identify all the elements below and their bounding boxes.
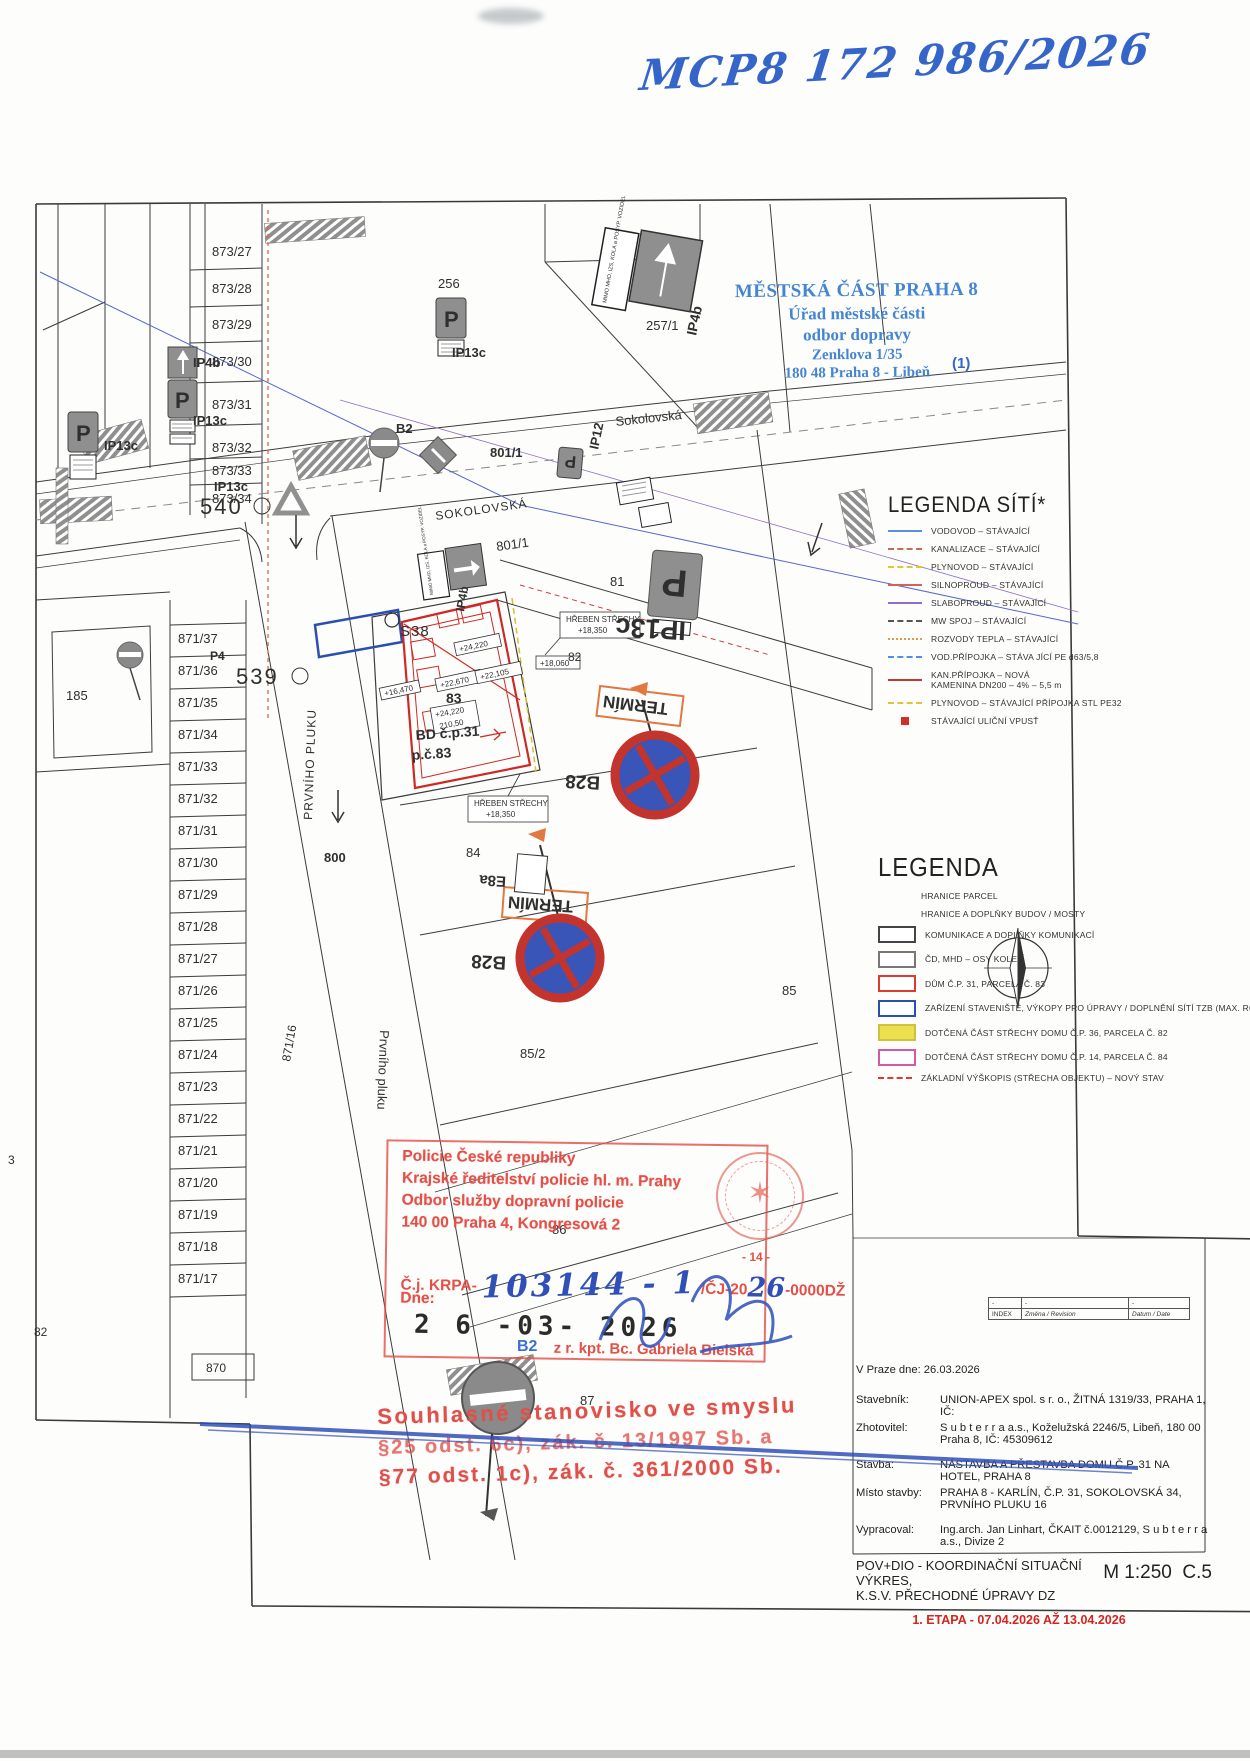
svg-text:BD č.p.31: BD č.p.31 <box>415 723 480 743</box>
stage-line: 1. ETAPA - 07.04.2026 AŽ 13.04.2026 <box>856 1613 1212 1627</box>
b2-annotation: B2 <box>517 1338 537 1356</box>
svg-text:871/18: 871/18 <box>178 1239 218 1254</box>
svg-text:E8a: E8a <box>478 871 506 889</box>
svg-text:HŘEBEN STŘECHY: HŘEBEN STŘECHY <box>474 799 548 808</box>
svg-text:IP13c: IP13c <box>452 345 486 360</box>
svg-text:IP13c: IP13c <box>193 413 227 428</box>
svg-text:871/33: 871/33 <box>178 759 218 774</box>
authority-stamp-line2: Úřad městské části <box>718 303 996 325</box>
scanned-plan-page: MIMO MHD, IZS, KOLA a POSYP. VOZIDEL MIM… <box>0 0 1250 1761</box>
svg-text:PRVNÍHO PLUKU: PRVNÍHO PLUKU <box>300 709 319 820</box>
svg-text:871/22: 871/22 <box>178 1111 218 1126</box>
svg-text:256: 256 <box>438 276 460 291</box>
revision-index-table: - - - INDEX Změna / Revision Datum / Dat… <box>988 1297 1190 1320</box>
svg-text:801/1: 801/1 <box>495 535 529 554</box>
legend-networks-title: LEGENDA SÍTÍ* <box>888 492 1081 518</box>
svg-text:871/21: 871/21 <box>178 1143 218 1158</box>
legend-main: LEGENDA HRANICE PARCEL HRANICE A DOPLŇKY… <box>878 852 1178 1091</box>
svg-text:Sokolovská: Sokolovská <box>615 407 683 429</box>
svg-text:871/19: 871/19 <box>178 1207 218 1222</box>
svg-text:P4: P4 <box>210 649 225 663</box>
svg-text:82: 82 <box>34 1325 48 1339</box>
svg-text:871/26: 871/26 <box>178 983 218 998</box>
yield-sign <box>276 486 306 513</box>
svg-text:IP4b: IP4b <box>453 585 471 612</box>
svg-text:873/27: 873/27 <box>212 244 252 259</box>
svg-text:IP13c: IP13c <box>214 479 248 494</box>
svg-text:TERMÍN: TERMÍN <box>602 692 669 719</box>
svg-text:+18,060: +18,060 <box>540 659 570 668</box>
svg-text:+18,350: +18,350 <box>578 626 608 635</box>
svg-text:P: P <box>76 421 91 446</box>
svg-text:P: P <box>660 560 689 604</box>
svg-text:540: 540 <box>200 494 243 519</box>
drawing-title: POV+DIO - KOORDINAČNÍ SITUAČNÍ VÝKRES, K… <box>856 1558 1212 1603</box>
scale-and-sheet: M 1:250 C.5 <box>1103 1562 1212 1584</box>
page-mark: - 14 - <box>742 1250 770 1264</box>
police-emblem: ✶ <box>716 1152 804 1240</box>
handwritten-case-number: 103144 - 1 <box>481 1265 697 1306</box>
svg-text:871/16: 871/16 <box>279 1024 299 1063</box>
legend-networks: LEGENDA SÍTÍ* VODOVOD – STÁVAJÍCÍ KANALI… <box>888 492 1098 734</box>
svg-text:871/25: 871/25 <box>178 1015 218 1030</box>
svg-text:85: 85 <box>782 983 796 998</box>
svg-text:257/1: 257/1 <box>646 318 679 333</box>
svg-text:P: P <box>564 452 577 472</box>
svg-text:IP12: IP12 <box>586 421 606 450</box>
svg-text:S38: S38 <box>400 623 430 640</box>
svg-text:871/17: 871/17 <box>178 1271 218 1286</box>
svg-text:P: P <box>175 388 190 413</box>
svg-text:P: P <box>444 307 459 332</box>
svg-text:185: 185 <box>66 688 88 703</box>
svg-text:871/34: 871/34 <box>178 727 218 742</box>
svg-text:870: 870 <box>206 1361 226 1375</box>
svg-text:SOKOLOVSKÁ: SOKOLOVSKÁ <box>434 495 528 523</box>
svg-text:871/35: 871/35 <box>178 695 218 710</box>
svg-text:871/30: 871/30 <box>178 855 218 870</box>
page-note: (1) <box>952 355 970 372</box>
police-stamp: Policie České republiky Krajské ředitels… <box>383 1139 768 1362</box>
svg-text:871/32: 871/32 <box>178 791 218 806</box>
svg-text:871/20: 871/20 <box>178 1175 218 1190</box>
svg-text:82: 82 <box>568 650 582 664</box>
scan-edge-bottom <box>0 1750 1250 1758</box>
svg-text:873/31: 873/31 <box>212 397 252 412</box>
svg-text:801/1: 801/1 <box>490 445 523 460</box>
svg-text:873/29: 873/29 <box>212 317 252 332</box>
svg-text:Prvního pluku: Prvního pluku <box>374 1030 392 1110</box>
svg-text:871/31: 871/31 <box>178 823 218 838</box>
approval-stamp: Souhlasné stanovisko ve smyslu §25 odst.… <box>377 1392 809 1490</box>
b28-sign-1: TERMÍN B28 <box>565 682 695 815</box>
title-block: V Praze dne: 26.03.2026 Stavebník:UNION-… <box>856 1364 1212 1627</box>
svg-text:TERMÍN: TERMÍN <box>507 892 573 915</box>
svg-text:539: 539 <box>236 664 279 689</box>
svg-text:+18,350: +18,350 <box>486 810 516 819</box>
svg-text:IP4b: IP4b <box>193 355 221 370</box>
signature-name: z r. kpt. Bc. Gabriela Bielská <box>554 1340 754 1360</box>
svg-text:871/27: 871/27 <box>178 951 218 966</box>
authority-stamp-line3: odbor dopravy <box>718 324 996 346</box>
construction-zone-outline <box>315 610 402 657</box>
svg-text:3: 3 <box>8 1153 15 1167</box>
date-stamp: 2 6 -03- 2026 <box>414 1310 683 1344</box>
svg-text:800: 800 <box>324 850 346 865</box>
svg-text:85/2: 85/2 <box>520 1046 545 1061</box>
svg-text:84: 84 <box>466 845 480 860</box>
svg-text:871/29: 871/29 <box>178 887 218 902</box>
svg-text:B28: B28 <box>565 770 601 793</box>
date-line: V Praze dne: 26.03.2026 <box>856 1364 1212 1376</box>
svg-text:B2: B2 <box>396 421 413 436</box>
svg-text:873/32: 873/32 <box>212 440 252 455</box>
svg-text:IP13c: IP13c <box>615 612 687 646</box>
svg-text:p.č.83: p.č.83 <box>411 744 452 763</box>
svg-text:871/23: 871/23 <box>178 1079 218 1094</box>
svg-text:83: 83 <box>446 690 462 706</box>
svg-text:873/33: 873/33 <box>212 463 252 478</box>
svg-text:871/36: 871/36 <box>178 663 218 678</box>
svg-text:871/28: 871/28 <box>178 919 218 934</box>
svg-text:IP13c: IP13c <box>104 438 138 453</box>
svg-text:873/28: 873/28 <box>212 281 252 296</box>
svg-text:B28: B28 <box>471 950 507 973</box>
case-number-row: Č.j. KRPA- 103144 - 1 /ČJ-2026-0000DŽ <box>400 1262 845 1304</box>
svg-text:871/37: 871/37 <box>178 631 218 646</box>
authority-stamp-line1: MĚSTSKÁ ČÁST PRAHA 8 <box>718 279 996 303</box>
b28-sign-2: TERMÍN B28 E8a <box>471 828 600 998</box>
svg-text:871/24: 871/24 <box>178 1047 218 1062</box>
svg-text:81: 81 <box>610 574 624 589</box>
scan-smudge <box>478 8 544 24</box>
legend-main-title: LEGENDA <box>878 852 1154 883</box>
